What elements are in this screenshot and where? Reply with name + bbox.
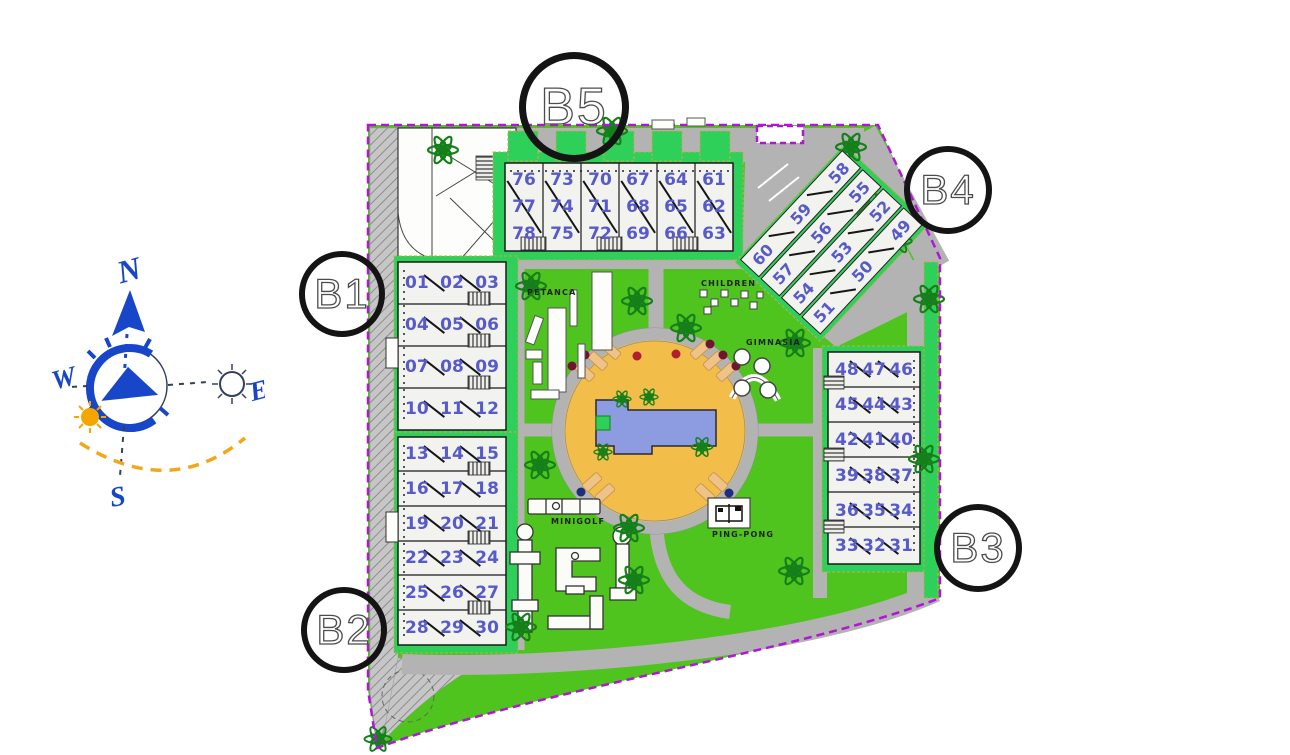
unit-number: 11 (440, 399, 464, 419)
unit-number: 09 (475, 357, 499, 377)
unit-row: 393837 (828, 458, 920, 493)
unit-number: 46 (889, 360, 913, 380)
unit-number: 29 (440, 618, 464, 638)
unit-number: 66 (664, 224, 688, 244)
unit-row: 010203 (398, 262, 506, 304)
unit-row: 101112 (398, 388, 506, 430)
unit-number: 08 (440, 357, 464, 377)
building-b3-units: 484746454443424140393837363534333231 (828, 352, 920, 564)
unit-number: 34 (889, 501, 913, 521)
building-b1-units: 010203040506070809101112 (398, 262, 506, 430)
unit-column: 737475 (543, 163, 581, 251)
pool-planter (596, 416, 610, 430)
unit-number: 37 (889, 466, 913, 486)
unit-row: 282930 (398, 610, 506, 645)
unit-number: 30 (475, 618, 499, 638)
unit-number: 07 (405, 357, 429, 377)
unit-number: 18 (475, 479, 499, 499)
unit-number: 63 (702, 224, 726, 244)
unit-number: 12 (475, 399, 499, 419)
unit-column: 767778 (505, 163, 543, 251)
unit-number: 42 (835, 430, 859, 450)
unit-number: 69 (626, 224, 650, 244)
unit-number: 68 (626, 197, 650, 217)
unit-number: 39 (835, 466, 859, 486)
unit-row: 040506 (398, 304, 506, 346)
unit-number: 10 (405, 399, 429, 419)
unit-number: 47 (862, 360, 886, 380)
unit-number: 24 (475, 548, 499, 568)
unit-number: 62 (702, 197, 726, 217)
unit-number: 45 (835, 395, 859, 415)
unit-row: 131415 (398, 437, 506, 472)
unit-row: 363534 (828, 493, 920, 528)
compass-south-label: S (107, 481, 128, 514)
unit-number: 76 (512, 170, 536, 190)
unit-number: 20 (440, 514, 464, 534)
building-label-b3: B3 (934, 504, 1022, 592)
top-gate-tab (652, 120, 674, 129)
unit-row: 424140 (828, 423, 920, 458)
unit-number: 31 (889, 536, 913, 556)
unit-number: 43 (889, 395, 913, 415)
unit-number: 17 (440, 479, 464, 499)
unit-number: 64 (664, 170, 688, 190)
unit-number: 49 (886, 215, 915, 244)
unit-number: 61 (702, 170, 726, 190)
building-label-b2: B2 (301, 587, 387, 673)
unit-column: 616263 (695, 163, 733, 251)
building-label-b5: B5 (519, 52, 629, 162)
unit-number: 36 (835, 501, 859, 521)
unit-number: 72 (588, 224, 612, 244)
compass-rose: N W E S (40, 248, 265, 523)
unit-column: 646566 (657, 163, 695, 251)
unit-number: 35 (862, 501, 886, 521)
unit-divider (827, 209, 853, 215)
building-label-b1: B1 (299, 251, 385, 337)
unit-divider (768, 231, 794, 237)
label-minigolf: MINIGOLF (551, 517, 605, 526)
unit-divider (830, 288, 856, 294)
unit-row: 192021 (398, 506, 506, 541)
label-gimnasia: GIMNASIA (746, 338, 801, 347)
unit-number: 28 (405, 618, 429, 638)
unit-number: 41 (862, 430, 886, 450)
unit-row: 161718 (398, 472, 506, 507)
building-b2-units: 131415161718192021222324252627282930 (398, 437, 506, 645)
unit-number: 40 (889, 430, 913, 450)
compass-west-label: W (48, 360, 81, 396)
unit-number: 16 (405, 479, 429, 499)
building-label-b4: B4 (904, 146, 992, 234)
unit-number: 03 (475, 273, 499, 293)
unit-number: 27 (475, 583, 499, 603)
site-plan: 010203040506070809101112 131415161718192… (0, 0, 1290, 755)
unit-number: 70 (588, 170, 612, 190)
unit-row: 454443 (828, 387, 920, 422)
unit-number: 67 (626, 170, 650, 190)
unit-number: 13 (405, 444, 429, 464)
unit-number: 19 (405, 514, 429, 534)
unit-number: 51 (809, 297, 838, 326)
unit-number: 06 (475, 315, 499, 335)
unit-number: 32 (862, 536, 886, 556)
building-b5-units: 767778737475707172676869646566616263 (505, 163, 733, 251)
unit-row: 484746 (828, 352, 920, 387)
unit-number: 22 (405, 548, 429, 568)
north-arrow (112, 290, 145, 380)
unit-number: 78 (512, 224, 536, 244)
unit-column: 707172 (581, 163, 619, 251)
unit-number: 48 (835, 360, 859, 380)
unit-number: 23 (440, 548, 464, 568)
unit-divider (789, 250, 815, 256)
unit-number: 15 (475, 444, 499, 464)
unit-number: 44 (862, 395, 886, 415)
unit-number: 71 (588, 197, 612, 217)
unit-row: 333231 (828, 529, 920, 564)
compass-dial (70, 338, 208, 476)
unit-divider (809, 269, 835, 275)
unit-number: 25 (405, 583, 429, 603)
unit-number: 04 (405, 315, 429, 335)
pingpong-table (708, 498, 750, 528)
compass-north-label: N (112, 249, 146, 291)
unit-row: 252627 (398, 576, 506, 611)
unit-number: 01 (405, 273, 429, 293)
label-pingpong: PING-PONG (712, 530, 774, 539)
unit-row: 222324 (398, 541, 506, 576)
unit-divider (807, 190, 833, 196)
unit-number: 02 (440, 273, 464, 293)
sun-east-icon (212, 364, 252, 404)
unit-divider (848, 228, 874, 234)
unit-number: 14 (440, 444, 464, 464)
site-entrance (757, 126, 803, 143)
unit-number: 74 (550, 197, 574, 217)
top-gate-tab (687, 118, 705, 126)
unit-number: 05 (440, 315, 464, 335)
unit-number: 21 (475, 514, 499, 534)
label-petanca: PETANCA (527, 288, 577, 297)
unit-number: 33 (835, 536, 859, 556)
label-children: CHILDREN (701, 279, 756, 288)
unit-number: 75 (550, 224, 574, 244)
unit-column: 676869 (619, 163, 657, 251)
compass-east-label: E (245, 373, 265, 407)
unit-number: 65 (664, 197, 688, 217)
unit-number: 26 (440, 583, 464, 603)
unit-row: 070809 (398, 346, 506, 388)
unit-number: 50 (847, 256, 876, 285)
unit-divider (868, 247, 894, 253)
unit-number: 73 (550, 170, 574, 190)
unit-number: 38 (862, 466, 886, 486)
unit-number: 77 (512, 197, 536, 217)
